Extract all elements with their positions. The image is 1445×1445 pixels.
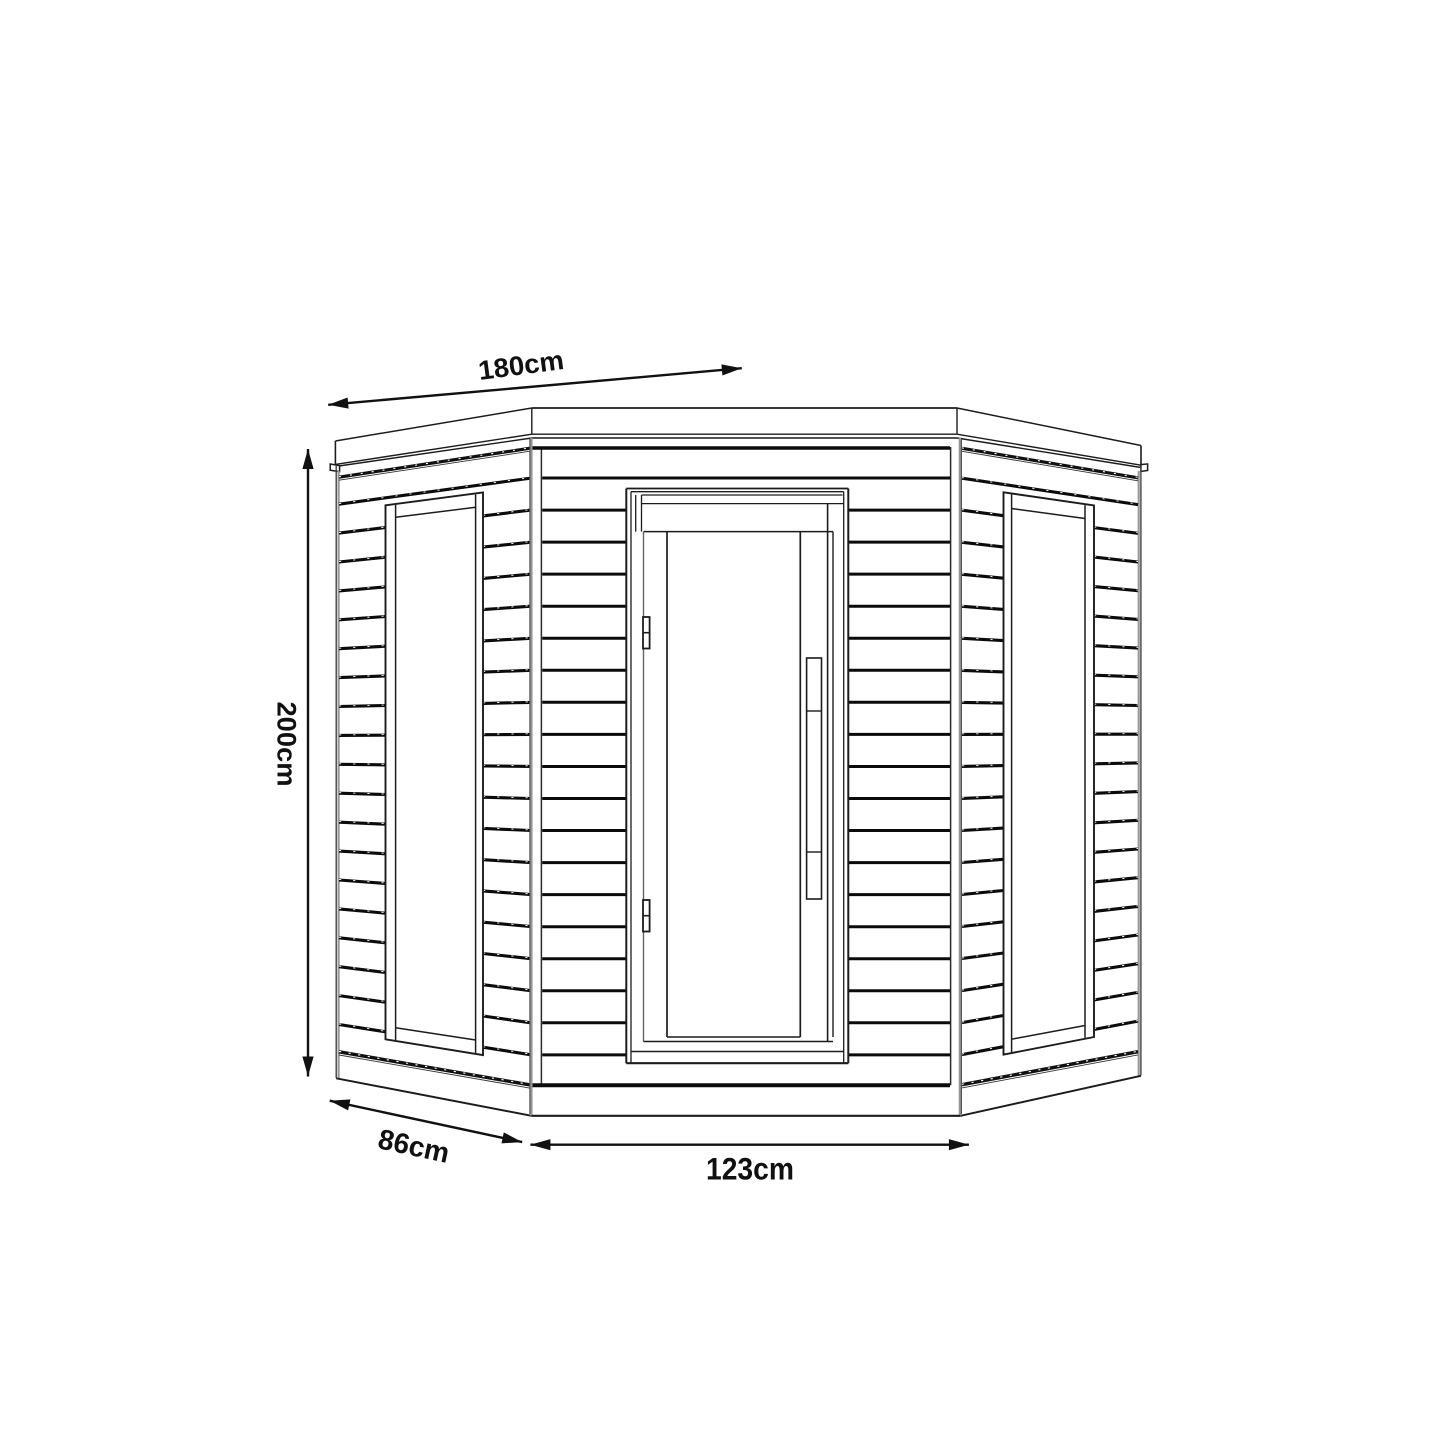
svg-text:200cm: 200cm <box>271 702 301 787</box>
svg-text:123cm: 123cm <box>706 1151 794 1187</box>
